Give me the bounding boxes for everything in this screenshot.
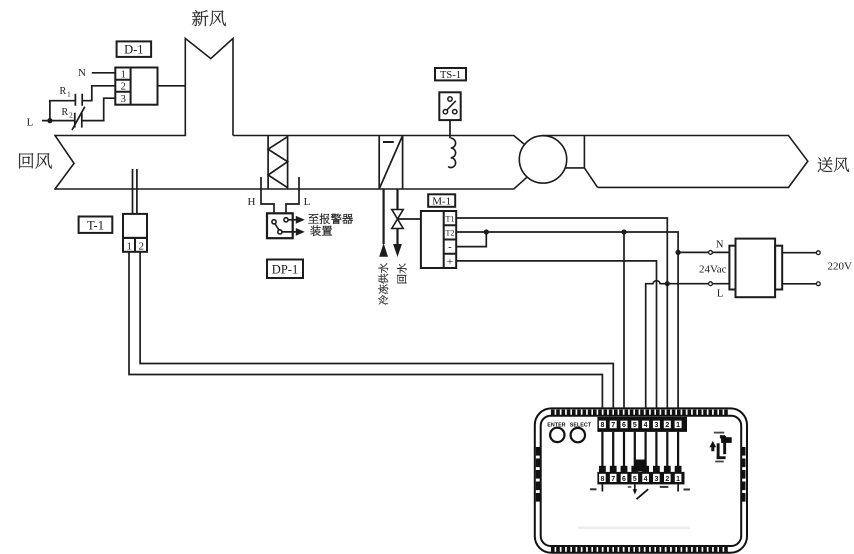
svg-text:N: N [716, 239, 724, 250]
svg-text:4: 4 [644, 476, 648, 483]
svg-text:1: 1 [67, 90, 71, 99]
svg-text:H: H [248, 196, 256, 208]
svg-text:2: 2 [69, 111, 73, 120]
svg-text:DP-1: DP-1 [272, 263, 298, 277]
svg-text:+: + [447, 256, 453, 268]
svg-text:6: 6 [622, 476, 626, 483]
svg-text:2: 2 [121, 82, 126, 93]
svg-text:8: 8 [600, 476, 604, 483]
svg-text:5: 5 [633, 476, 637, 483]
svg-text:N: N [78, 67, 86, 79]
svg-text:M-1: M-1 [432, 196, 451, 208]
svg-text:1: 1 [676, 476, 680, 483]
svg-text:T1: T1 [446, 215, 455, 224]
svg-text:3: 3 [121, 94, 126, 105]
svg-text:L: L [304, 196, 311, 208]
svg-text:2: 2 [665, 476, 669, 483]
svg-text:2: 2 [665, 422, 669, 429]
svg-text:3: 3 [654, 476, 658, 483]
svg-text:1: 1 [676, 422, 680, 429]
svg-text:1: 1 [126, 241, 132, 253]
svg-text:4: 4 [644, 422, 648, 429]
svg-text:2: 2 [138, 241, 144, 253]
svg-text:L: L [717, 288, 723, 299]
svg-text:6: 6 [622, 422, 626, 429]
svg-text:-: - [448, 241, 452, 253]
svg-text:7: 7 [611, 476, 615, 483]
svg-text:220V: 220V [828, 260, 853, 272]
svg-text:5: 5 [633, 422, 637, 429]
svg-text:3: 3 [654, 422, 658, 429]
svg-text:D-1: D-1 [124, 43, 143, 57]
svg-text:7: 7 [611, 422, 615, 429]
svg-text:TS-1: TS-1 [440, 70, 461, 81]
svg-text:T-1: T-1 [87, 219, 104, 233]
svg-text:R: R [62, 107, 69, 118]
svg-text:R: R [60, 86, 67, 97]
svg-text:T2: T2 [446, 229, 455, 238]
svg-text:24Vac: 24Vac [699, 263, 727, 275]
svg-text:1: 1 [121, 70, 126, 81]
svg-text:8: 8 [600, 422, 604, 429]
svg-text:L: L [27, 117, 34, 129]
